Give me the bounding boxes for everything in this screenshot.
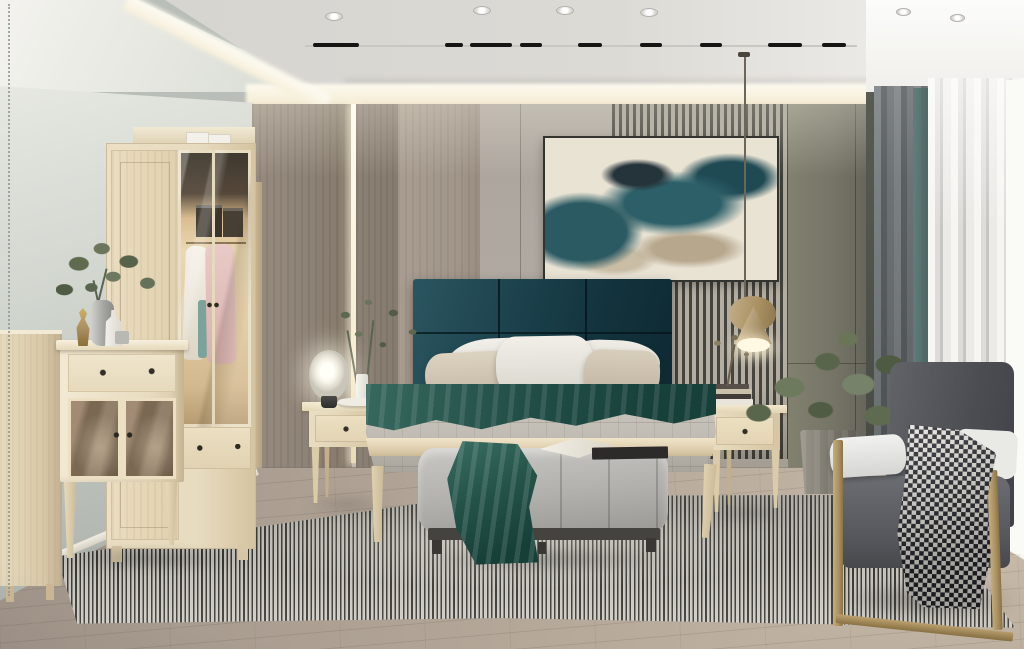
pendant-canopy bbox=[738, 52, 750, 57]
bench-foot bbox=[432, 540, 442, 554]
track-light-segment bbox=[768, 43, 802, 47]
track-light-segment bbox=[822, 43, 846, 47]
armchair-gold-frame bbox=[833, 440, 843, 626]
headboard-seam bbox=[413, 332, 672, 334]
track-light-segment bbox=[445, 43, 463, 47]
floor-shadow bbox=[108, 552, 254, 568]
track-light-segment bbox=[313, 43, 359, 47]
dresser-drawer bbox=[68, 354, 176, 392]
track-light-segment bbox=[520, 43, 542, 47]
drawer-knobs bbox=[192, 444, 244, 452]
door-knobs bbox=[206, 302, 220, 308]
track-light-segment bbox=[578, 43, 602, 47]
bench-foot bbox=[646, 538, 656, 552]
floor-shadow bbox=[420, 546, 680, 572]
houndstooth-blanket bbox=[895, 424, 997, 609]
track-light-segment bbox=[640, 43, 662, 47]
door-knobs bbox=[112, 432, 134, 438]
glass-table-lamp bbox=[309, 350, 349, 400]
wall-dotted-seam bbox=[8, 4, 10, 596]
glass-door-mullion bbox=[212, 150, 215, 427]
dresser-mirror-door bbox=[68, 398, 121, 479]
track-light-segment bbox=[700, 43, 722, 47]
dark-tray bbox=[592, 446, 668, 459]
downlight-icon bbox=[950, 14, 965, 22]
downlight-icon bbox=[473, 6, 491, 15]
sideboard-leg bbox=[46, 584, 54, 600]
downlight-icon bbox=[640, 8, 658, 17]
table-lamp-base bbox=[321, 396, 337, 408]
track-light-segment bbox=[470, 43, 512, 47]
bedroom-interior-photo bbox=[0, 0, 1024, 649]
downlight-icon bbox=[325, 12, 343, 21]
downlight-icon bbox=[896, 8, 911, 16]
dresser-mirror-door bbox=[123, 398, 176, 479]
downlight-icon bbox=[556, 6, 574, 15]
pendant-cord bbox=[744, 56, 746, 298]
bench-foot bbox=[538, 542, 546, 554]
floor-shadow bbox=[706, 506, 794, 520]
small-cup bbox=[115, 331, 129, 344]
